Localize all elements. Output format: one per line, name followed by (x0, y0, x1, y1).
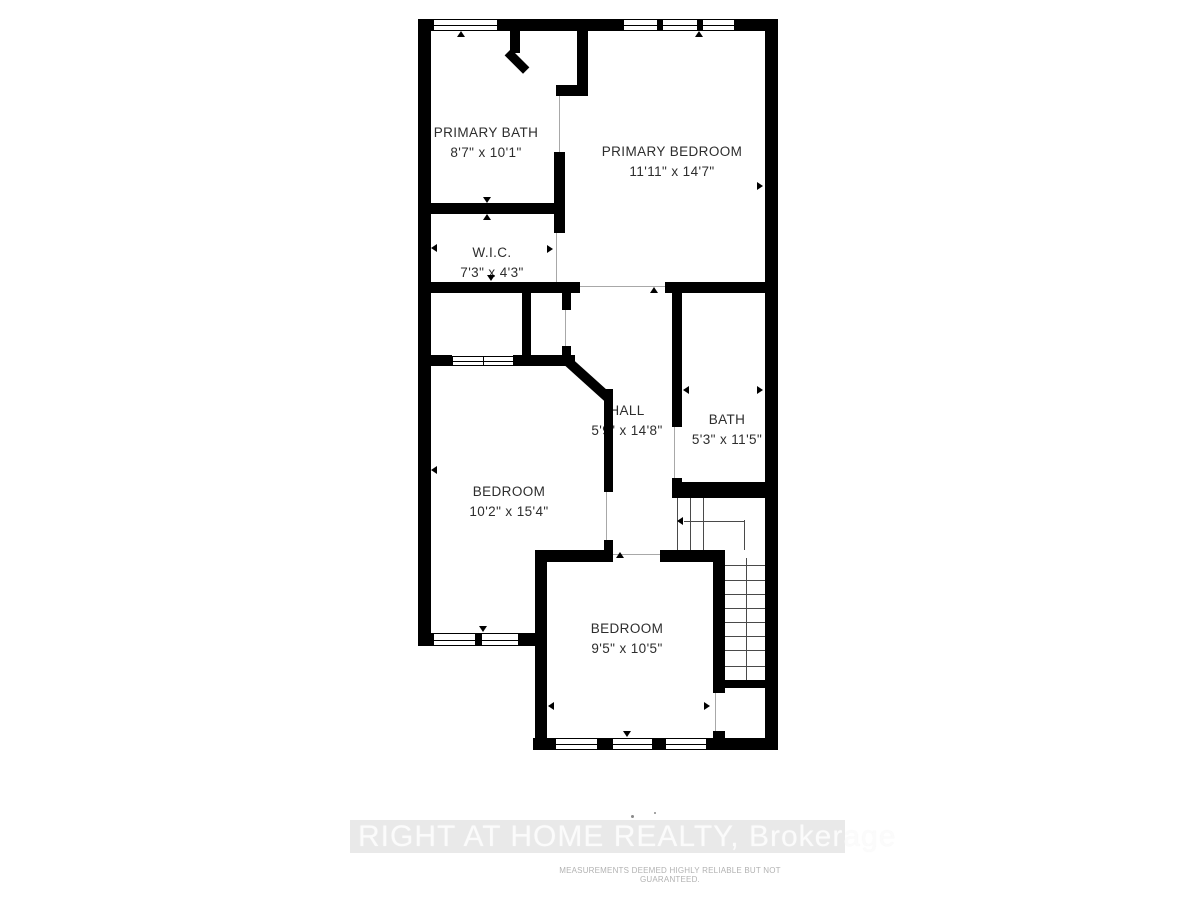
wall-segment (418, 355, 452, 366)
dimension-tick (487, 275, 495, 281)
wall-segment (660, 550, 720, 562)
wall-segment (665, 282, 765, 293)
dimension-tick (479, 626, 487, 632)
wall-segment (418, 19, 431, 646)
dimension-tick (704, 702, 710, 710)
wall-segment (672, 293, 682, 427)
room-name: PRIMARY BATH (434, 123, 539, 143)
stair-tread (690, 498, 691, 550)
room-label-hall: HALL 5'9" x 14'8" (591, 401, 662, 442)
window (433, 19, 498, 31)
window-mullion (475, 633, 482, 646)
room-name: W.I.C. (460, 243, 523, 263)
window (665, 738, 707, 750)
stair-tread (703, 498, 704, 550)
wall-segment (653, 738, 665, 750)
wall-segment (522, 293, 531, 355)
watermark-brand-text: RIGHT AT HOME REALTY, Brokerage (350, 820, 845, 853)
wall-segment (418, 203, 565, 214)
dimension-tick (548, 702, 554, 710)
watermark-dot (631, 815, 634, 818)
stair-tread (725, 594, 765, 595)
door-opening (674, 427, 675, 478)
room-name: PRIMARY BEDROOM (602, 142, 743, 162)
room-dims: 5'9" x 14'8" (591, 421, 662, 441)
door-opening (606, 492, 607, 540)
dimension-tick (547, 245, 553, 253)
room-name: HALL (591, 401, 662, 421)
wall-segment (598, 738, 612, 750)
room-label-bedroom-left: BEDROOM 10'2" x 15'4" (469, 482, 548, 523)
dimension-tick (483, 197, 491, 203)
window-frame-line (434, 25, 497, 26)
dimension-tick (431, 244, 437, 252)
dimension-tick (431, 466, 437, 474)
stair-tread (725, 565, 765, 566)
window (555, 738, 598, 750)
watermark-dot (654, 812, 656, 814)
wall-segment (577, 31, 588, 87)
window-frame-line (666, 744, 706, 745)
stair-edge-line (744, 520, 745, 550)
room-dims: 9'5" x 10'5" (591, 639, 664, 659)
wall-segment (533, 738, 555, 750)
dimension-tick (616, 552, 624, 558)
stair-tread (725, 636, 765, 637)
stair-tread (725, 622, 765, 623)
room-dims: 11'11" x 14'7" (602, 162, 743, 182)
dimension-tick (650, 287, 658, 293)
stair-center-line (746, 558, 747, 682)
wall-segment (713, 550, 725, 693)
door-opening (565, 310, 566, 346)
wall-segment (554, 152, 565, 233)
window-mullion (657, 19, 663, 31)
dimension-tick (695, 31, 703, 37)
wall-segment (535, 550, 547, 750)
room-name: BEDROOM (469, 482, 548, 502)
room-label-bedroom-bottom: BEDROOM 9'5" x 10'5" (591, 619, 664, 660)
window-mullion (697, 19, 703, 31)
wall-segment (765, 19, 778, 750)
door-opening (556, 233, 557, 282)
wall-segment (707, 738, 765, 750)
room-name: BEDROOM (591, 619, 664, 639)
wall-segment (418, 282, 580, 293)
room-dims: 10'2" x 15'4" (469, 502, 548, 522)
window-frame-line (613, 744, 652, 745)
stair-tread (725, 608, 765, 609)
stair-tread (725, 580, 765, 581)
closet-bifold-doors (452, 356, 514, 366)
room-dims: 8'7" x 10'1" (434, 143, 539, 163)
watermark-band: RIGHT AT HOME REALTY, Brokerage (350, 820, 845, 853)
window (433, 633, 519, 646)
window-frame-line (624, 25, 734, 26)
floor-plan: PRIMARY BATH 8'7" x 10'1" PRIMARY BEDROO… (0, 0, 1200, 900)
bifold-divider (483, 356, 484, 366)
door-opening (715, 693, 716, 731)
dimension-tick (683, 386, 689, 394)
dimension-tick (757, 386, 763, 394)
stair-direction-arrow (677, 517, 683, 525)
dimension-tick (483, 214, 491, 220)
dimension-tick (457, 31, 465, 37)
dimension-tick (623, 731, 631, 737)
dimension-tick (757, 182, 763, 190)
wall-segment (498, 19, 623, 31)
wall-segment (519, 633, 547, 646)
wall-segment (556, 85, 588, 96)
room-name: BATH (692, 410, 762, 430)
window (612, 738, 653, 750)
room-dims: 5'3" x 11'5" (692, 430, 762, 450)
room-label-primary-bath: PRIMARY BATH 8'7" x 10'1" (434, 123, 539, 164)
room-label-bath: BATH 5'3" x 11'5" (692, 410, 762, 451)
room-label-primary-bedroom: PRIMARY BEDROOM 11'11" x 14'7" (602, 142, 743, 183)
stair-tread (725, 650, 765, 651)
wall-segment (604, 389, 613, 492)
disclaimer-text: MEASUREMENTS DEEMED HIGHLY RELIABLE BUT … (540, 866, 800, 884)
stair-tread (725, 666, 765, 667)
window-frame-line (556, 744, 597, 745)
window (623, 19, 735, 31)
stair-direction-line (684, 521, 744, 522)
door-opening (559, 96, 560, 152)
wall-segment (538, 550, 613, 562)
wall-segment (672, 482, 765, 498)
wall-segment (718, 680, 765, 688)
wall-segment (562, 293, 571, 310)
